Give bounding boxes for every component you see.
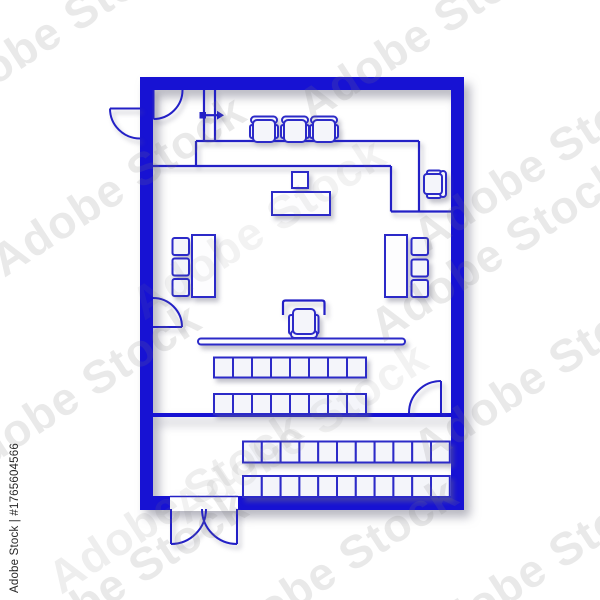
opening-marker-square <box>200 112 207 119</box>
side-table-left <box>173 235 216 297</box>
audience-seat <box>233 394 252 414</box>
audience-seat <box>299 476 318 497</box>
audience-seat <box>318 476 337 497</box>
audience-seat <box>375 476 394 497</box>
audience-seat <box>356 476 375 497</box>
bar-stool <box>281 117 309 143</box>
audience-seat <box>262 476 281 497</box>
audience-seat <box>243 442 262 463</box>
audience-seat <box>347 394 366 414</box>
audience-seat <box>290 394 309 414</box>
audience-seat <box>375 442 394 463</box>
presenter-chair <box>289 309 319 338</box>
audience-seat <box>337 442 356 463</box>
audience-seat <box>252 394 271 414</box>
staff-chair <box>424 171 446 199</box>
audience-seat <box>299 442 318 463</box>
audience-seat <box>290 358 309 378</box>
audience-seat <box>214 394 233 414</box>
audience-seat <box>271 358 290 378</box>
audience-seat <box>318 442 337 463</box>
head-table <box>198 339 405 345</box>
audience-seat <box>431 476 450 497</box>
audience-seat <box>412 442 431 463</box>
audience-seat <box>233 358 252 378</box>
audience-seat <box>271 394 290 414</box>
floor-plan-drawing <box>0 0 600 600</box>
door-exterior-left <box>110 109 140 139</box>
entry-double-door <box>171 509 237 544</box>
upper-seat-row-2 <box>214 394 366 414</box>
audience-seat <box>262 442 281 463</box>
audience-seat <box>243 476 262 497</box>
audience-seat <box>309 394 328 414</box>
monitor <box>292 172 308 188</box>
audience-seat <box>281 442 300 463</box>
stock-image-canvas: Adobe Stock Adobe Stock Adobe Stock Adob… <box>0 0 600 600</box>
audience-seat <box>252 358 271 378</box>
audience-seat <box>393 442 412 463</box>
audience-seat <box>214 358 233 378</box>
audience-seat <box>356 442 375 463</box>
audience-seat <box>431 442 450 463</box>
bar-stool <box>250 117 278 143</box>
bar-stool <box>310 117 338 143</box>
lower-seat-row-2 <box>243 476 450 497</box>
audience-seat <box>281 476 300 497</box>
audience-seat <box>337 476 356 497</box>
upper-seat-row-1 <box>214 358 366 378</box>
audience-seat <box>309 358 328 378</box>
audience-seat <box>393 476 412 497</box>
audience-seat <box>328 394 347 414</box>
audience-seat <box>412 476 431 497</box>
audience-seat <box>347 358 366 378</box>
reception-desk <box>272 192 330 215</box>
audience-seat <box>328 358 347 378</box>
side-table-right <box>385 235 428 297</box>
lower-seat-row-1 <box>243 442 450 463</box>
